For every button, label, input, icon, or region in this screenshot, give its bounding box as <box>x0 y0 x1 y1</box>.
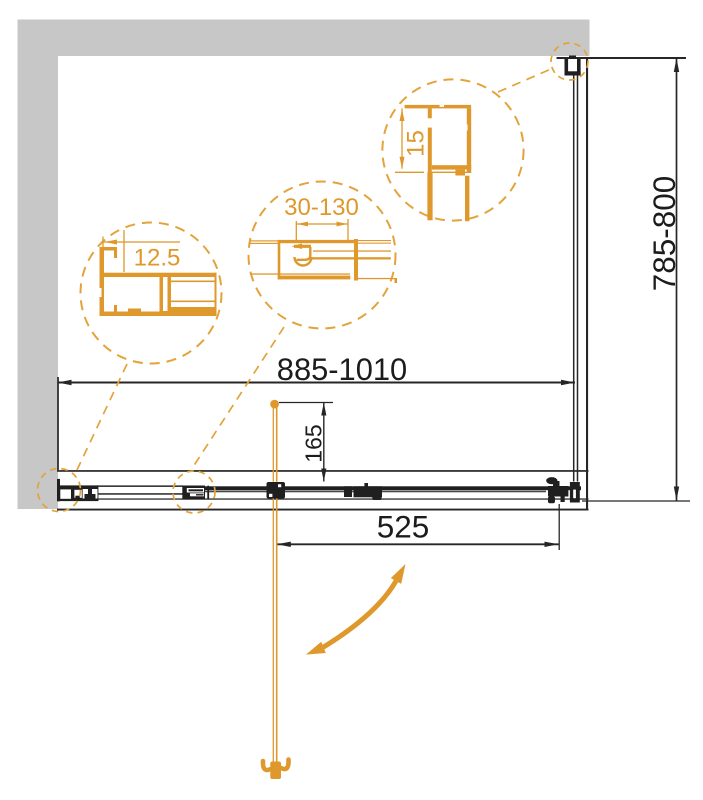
svg-text:885-1010: 885-1010 <box>277 352 407 387</box>
svg-text:12.5: 12.5 <box>134 245 181 272</box>
svg-text:525: 525 <box>377 509 430 545</box>
svg-text:165: 165 <box>300 424 326 462</box>
svg-text:30-130: 30-130 <box>284 194 359 221</box>
svg-text:785-800: 785-800 <box>646 176 682 292</box>
svg-text:15: 15 <box>403 130 430 157</box>
